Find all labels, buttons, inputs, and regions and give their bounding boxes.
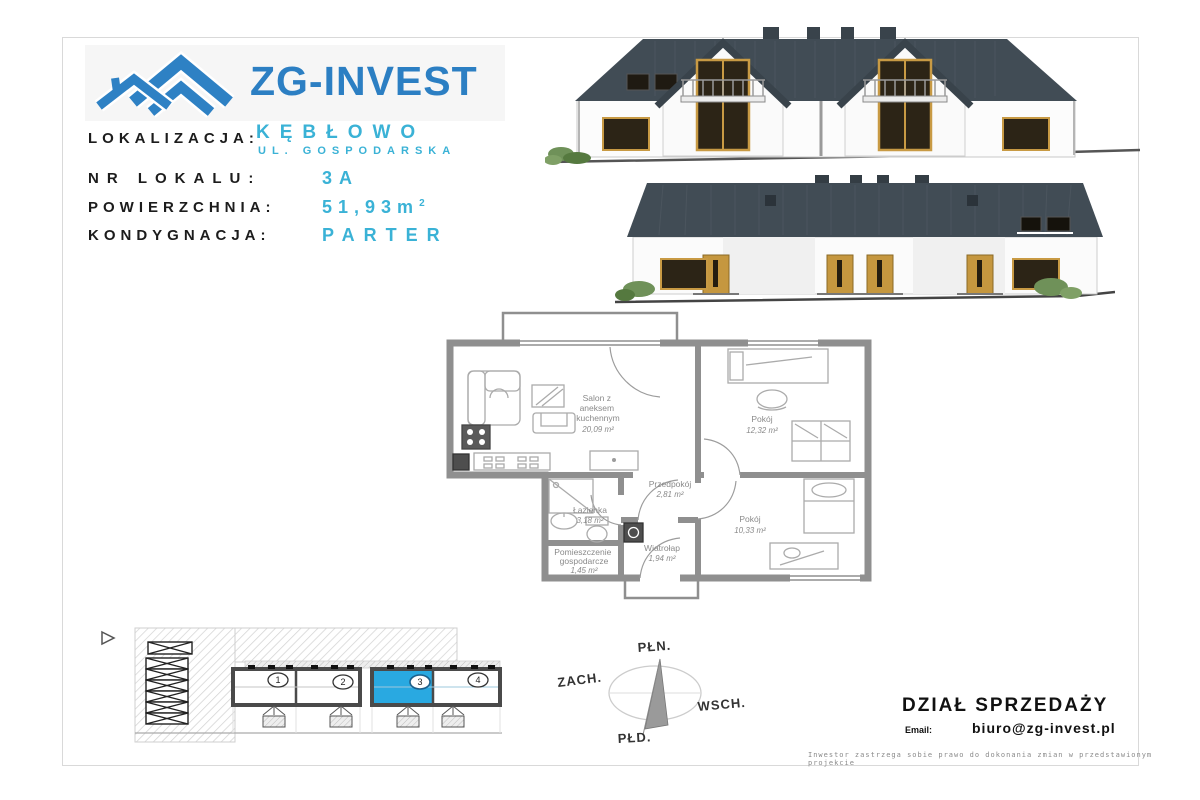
pg-line2: gospodarcze xyxy=(560,556,609,566)
compass-east-label: WSCH. xyxy=(697,695,746,714)
room-area-pokoj-dolny: 10,33 m² xyxy=(734,526,766,535)
street-value: UL. GOSPODARSKA xyxy=(258,145,456,157)
room-area-salon: 20,09 m² xyxy=(581,425,614,434)
room-label-pokoj-gorny: Pokój xyxy=(751,414,772,424)
site-plan: 1 2 3 4 xyxy=(90,618,540,748)
room-area-wiatrolap: 1,94 m² xyxy=(648,554,675,563)
powierzchnia-value: 51,93m2 xyxy=(322,197,431,218)
nr-lokalu-value: 3A xyxy=(322,168,359,189)
powierzchnia-sup: 2 xyxy=(419,198,431,209)
room-area-pokoj-gorny: 12,32 m² xyxy=(746,426,778,435)
compass-needle-icon xyxy=(645,659,668,729)
unit-number-2: 2 xyxy=(340,677,345,687)
brand-name: ZG-INVEST xyxy=(250,58,478,105)
room-label-pokoj-dolny: Pokój xyxy=(739,514,760,524)
unit-number-3: 3 xyxy=(417,677,422,687)
lokalizacja-value: KĘBŁOWO xyxy=(256,122,425,144)
powierzchnia-number: 51,93 xyxy=(322,197,397,217)
email-label: Email: xyxy=(905,725,932,735)
compass-rose: PŁN. ZACH. WSCH. PŁD. xyxy=(550,635,760,750)
salon-line2: aneksem xyxy=(580,403,615,413)
sales-dept-title: DZIAŁ SPRZEDAŻY xyxy=(902,695,1108,717)
salon-line3: kuchennym xyxy=(576,413,619,423)
north-arrow-icon xyxy=(102,632,114,644)
compass-north-label: PŁN. xyxy=(637,638,672,655)
floor-plan: Salon z aneksem kuchennym 20,09 m² Pokój… xyxy=(440,303,890,603)
powierzchnia-label: POWIERZCHNIA: xyxy=(88,199,276,216)
room-label-pom-gospodarcze: Pomieszczenie gospodarcze xyxy=(554,547,614,566)
retaining-wall-symbols xyxy=(146,642,192,724)
unit-number-4: 4 xyxy=(475,675,480,685)
compass-west-label: ZACH. xyxy=(557,670,603,690)
nr-lokalu-label: NR LOKALU: xyxy=(88,170,261,187)
flyer-page: ZG-INVEST LOKALIZACJA: KĘBŁOWO UL. GOSPO… xyxy=(0,0,1200,800)
kondygnacja-label: KONDYGNACJA: xyxy=(88,227,271,244)
unit-number-1: 1 xyxy=(275,675,280,685)
lokalizacja-label: LOKALIZACJA: xyxy=(88,130,259,147)
room-area-lazienka: 3,18 m² xyxy=(576,516,603,525)
compass-south-label: PŁD. xyxy=(617,729,651,746)
elevation-front-view xyxy=(545,22,1145,172)
room-label-lazienka: Łazienka xyxy=(573,505,607,515)
room-area-przedpokoj: 2,81 m² xyxy=(655,490,683,499)
terrace-symbols xyxy=(263,706,464,727)
disclaimer-text: Inwestor zastrzega sobie prawo do dokona… xyxy=(808,751,1200,767)
powierzchnia-unit: m xyxy=(397,197,419,217)
room-label-wiatrolap: Wiatrołap xyxy=(644,543,680,553)
email-value: biuro@zg-invest.pl xyxy=(972,720,1116,736)
salon-line1: Salon z xyxy=(583,393,611,403)
kondygnacja-value: PARTER xyxy=(322,225,449,246)
room-label-salon: Salon z aneksem kuchennym xyxy=(576,393,619,423)
brand-roofs-icon xyxy=(95,48,245,118)
room-area-pom-gospodarcze: 1,45 m² xyxy=(570,566,597,575)
room-label-przedpokoj: Przedpokój xyxy=(649,479,692,489)
elevation-entrance-view xyxy=(615,175,1115,310)
